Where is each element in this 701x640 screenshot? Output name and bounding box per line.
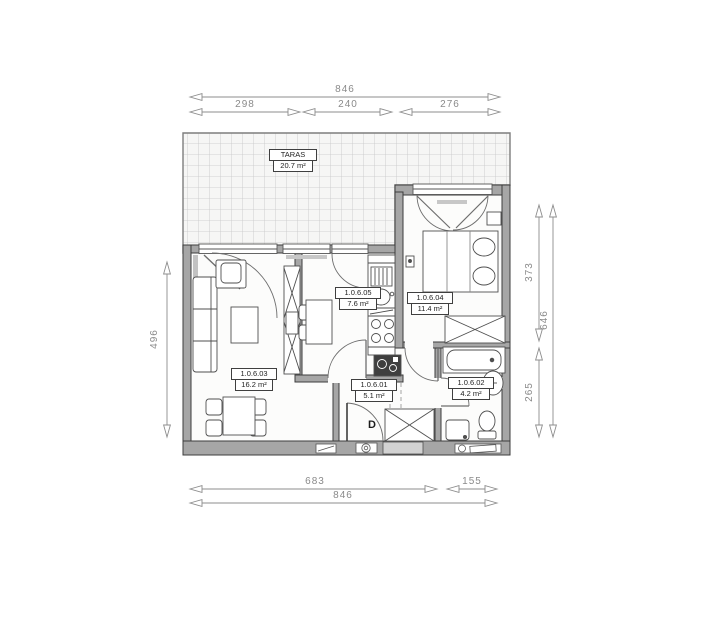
room-label-bathroom: 1.0.6.02 4.2 m² [448, 377, 494, 400]
bed [423, 231, 498, 292]
hall-wardrobe [385, 409, 434, 441]
room-id: 1.0.6.05 [335, 287, 381, 299]
bedside-table [487, 212, 501, 225]
dim-top-seg-3: 276 [405, 99, 495, 111]
dim-right-seg-1: 373 [524, 242, 536, 302]
entrance-threshold [383, 442, 423, 454]
vent [316, 444, 336, 453]
hall-furniture [385, 409, 434, 441]
tv-unit [284, 266, 300, 374]
dim-top-total: 846 [305, 84, 385, 96]
door-coil-symbol [356, 443, 377, 453]
floor-plan-drawing [0, 0, 701, 640]
dim-bottom-seg-1: 683 [270, 476, 360, 488]
coffee-table [231, 307, 258, 343]
dim-left: 496 [149, 309, 161, 369]
dim-right-seg-2: 265 [524, 362, 536, 422]
wall-left [183, 245, 191, 455]
dim-bottom-seg-2: 155 [432, 476, 512, 488]
dim-bottom-total: 846 [303, 490, 383, 502]
bathtub [443, 347, 505, 373]
room-label-kitchen: 1.0.6.05 7.6 m² [335, 287, 381, 310]
washing-machine [446, 420, 469, 440]
dim-right-total: 646 [539, 290, 551, 350]
toilet [478, 411, 496, 439]
entrance-door-label: D [368, 419, 376, 431]
room-label-bedroom: 1.0.6.04 11.4 m² [407, 292, 453, 315]
armchair [216, 260, 246, 288]
light-switch [406, 256, 414, 267]
terrace-label: TARAS 20.7 m² [269, 149, 317, 172]
room-area: 11.4 m² [411, 304, 449, 315]
kitchen-appliance [374, 355, 401, 376]
room-label-living: 1.0.6.03 16.2 m² [231, 368, 277, 391]
room-area: 5.1 m² [355, 391, 393, 402]
room-id: 1.0.6.03 [231, 368, 277, 380]
room-id: 1.0.6.04 [407, 292, 453, 304]
wall-bedroom-left [395, 192, 403, 348]
sofa [193, 277, 217, 372]
room-id: 1.0.6.02 [448, 377, 494, 389]
room-area: 7.6 m² [339, 299, 377, 310]
room-id: 1.0.6.01 [351, 379, 397, 391]
floor-plan-page: 846 298 240 276 496 373 265 646 683 155 … [0, 0, 701, 640]
dim-top-seg-2: 240 [303, 99, 393, 111]
bedroom-wardrobe [445, 316, 505, 343]
dim-top-seg-1: 298 [200, 99, 290, 111]
room-area: 4.2 m² [452, 389, 490, 400]
room-label-hall: 1.0.6.01 5.1 m² [351, 379, 397, 402]
terrace-name: TARAS [269, 149, 317, 161]
terrace-area: 20.7 m² [273, 161, 313, 172]
radiator-bottom-right [455, 444, 501, 453]
wall-hall-stub [333, 382, 339, 441]
room-area: 16.2 m² [235, 380, 273, 391]
